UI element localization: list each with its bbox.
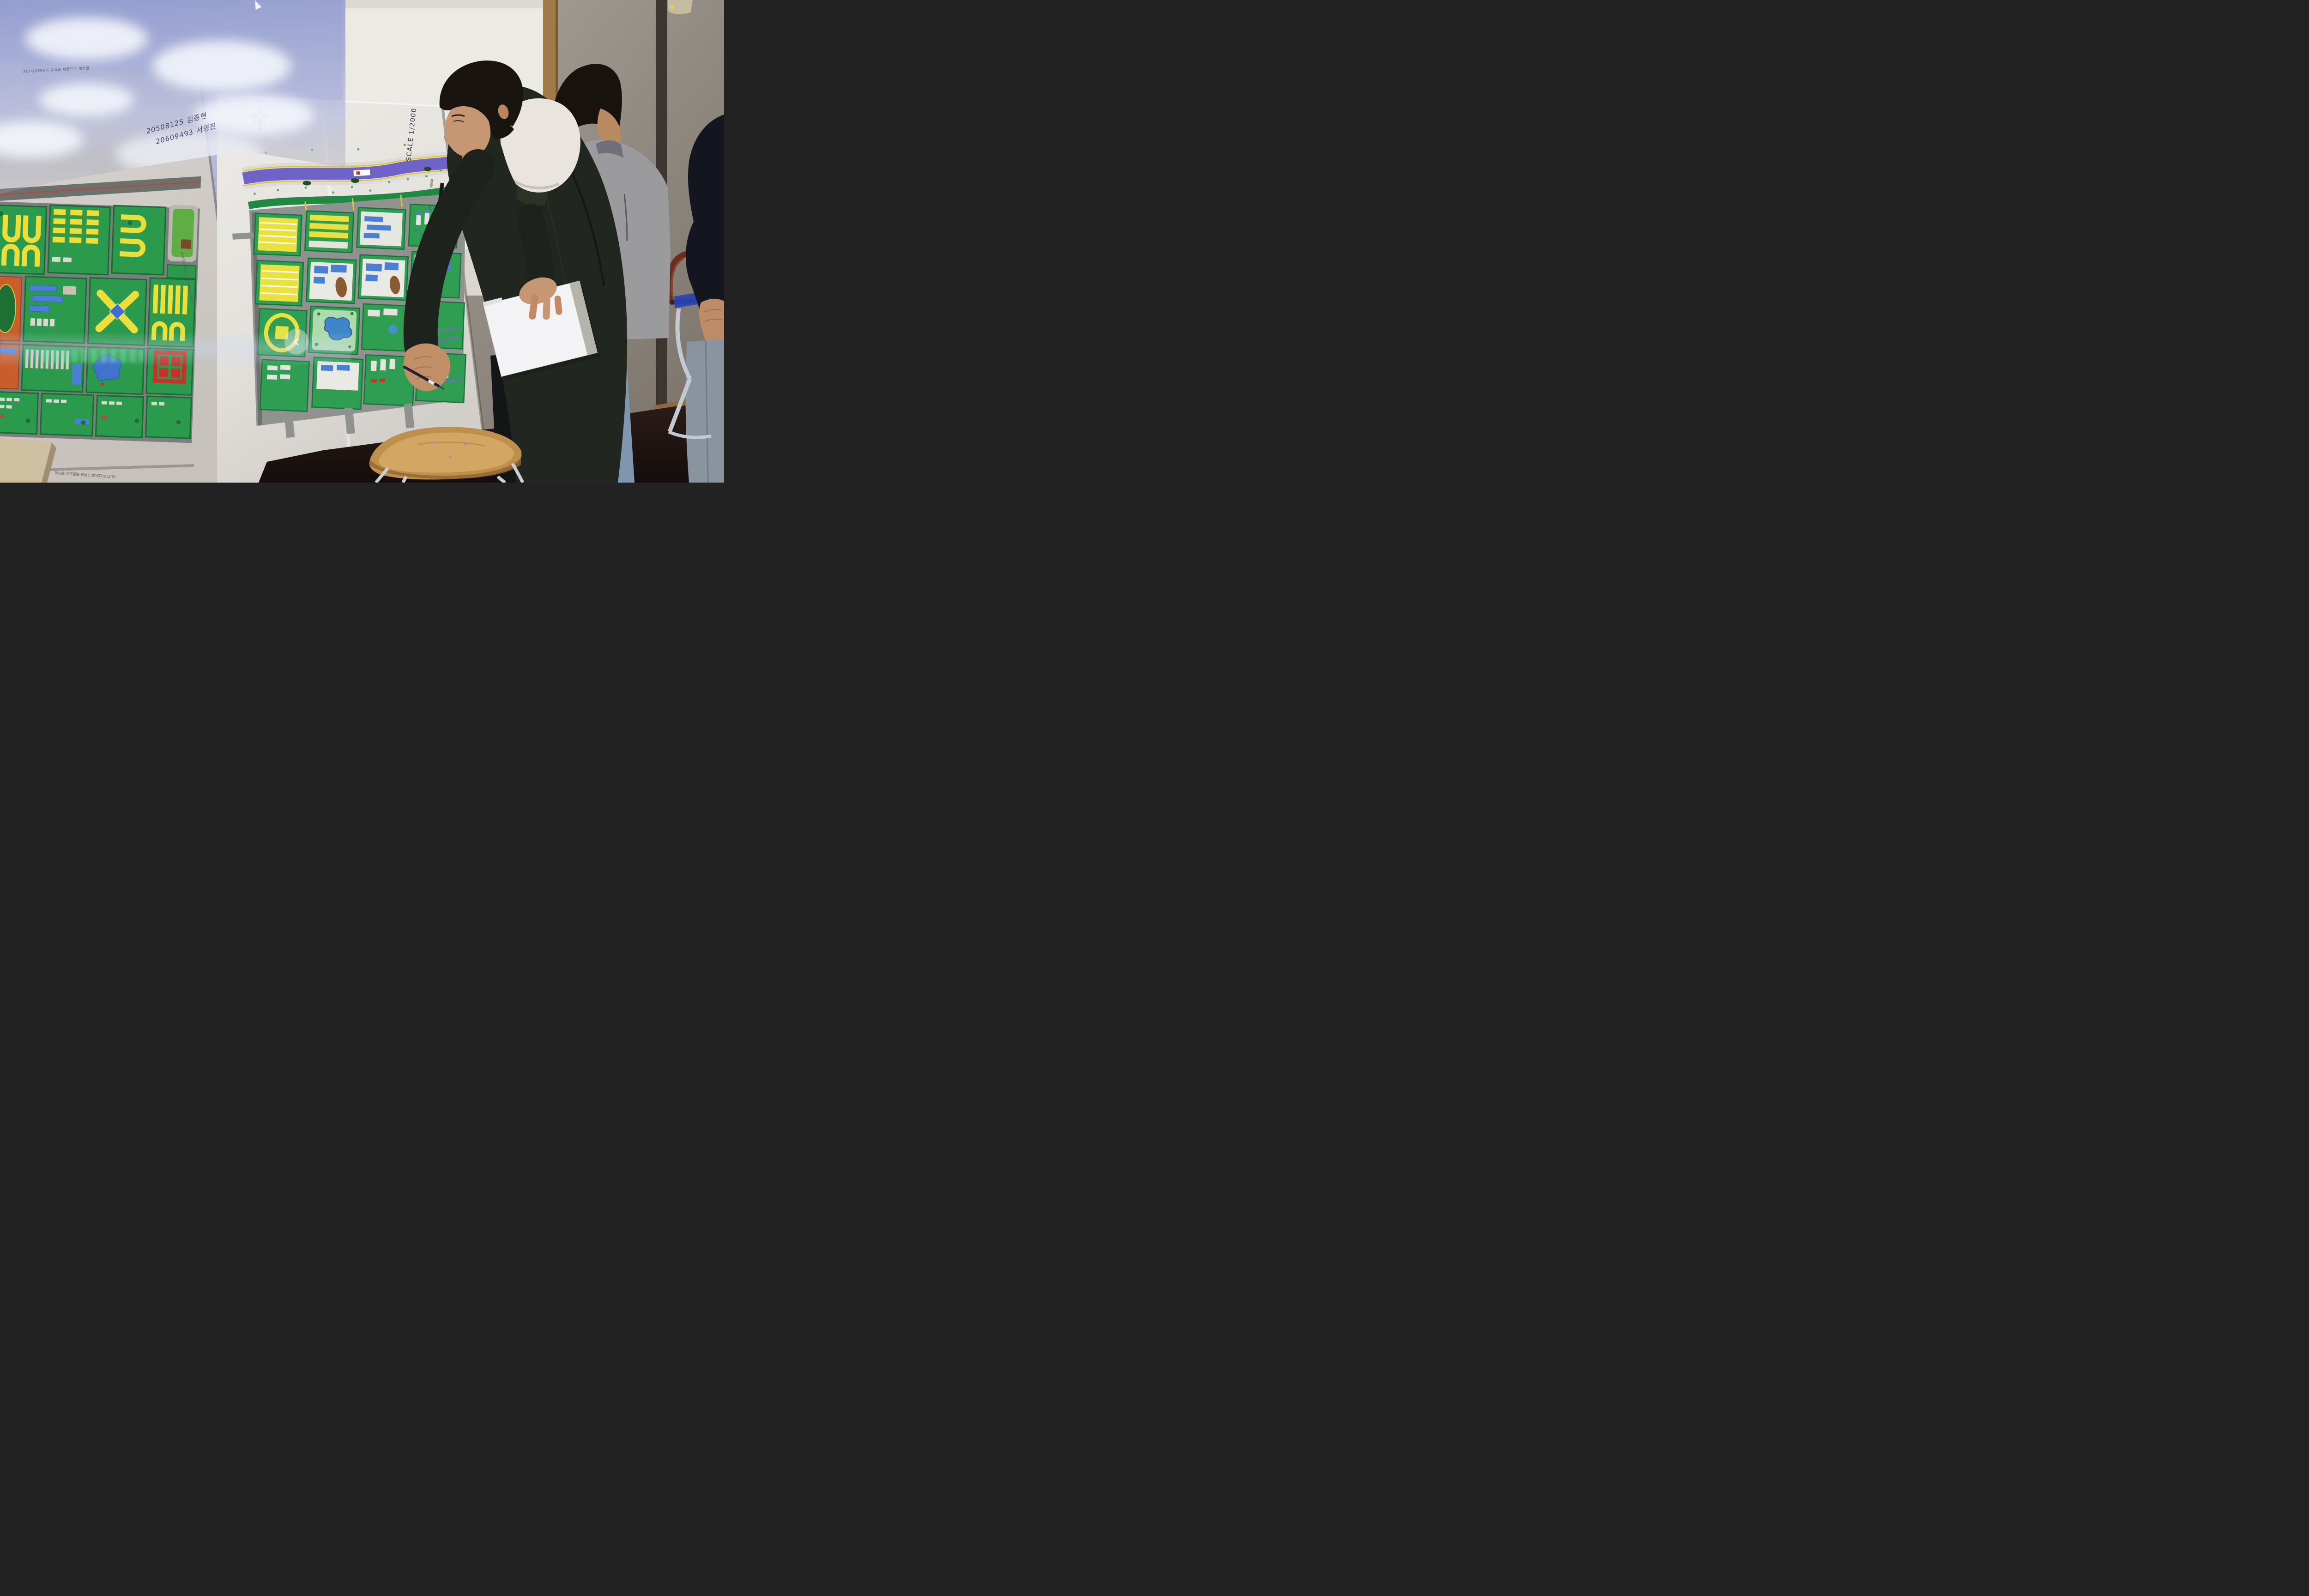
presenter-a <box>404 60 627 483</box>
bystander-right <box>686 115 724 483</box>
people-layer <box>0 0 724 483</box>
bystander-jeans <box>686 339 724 483</box>
classroom-presentation-photo: N <box>0 0 724 483</box>
presenter-a-pointing-arm <box>421 166 478 345</box>
bystander-hand <box>699 299 724 345</box>
